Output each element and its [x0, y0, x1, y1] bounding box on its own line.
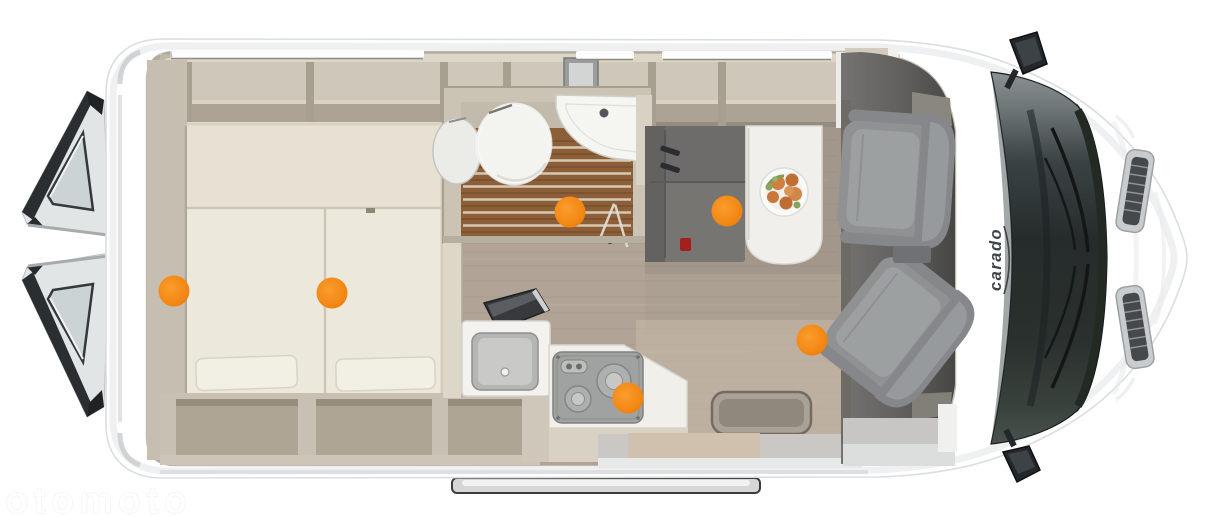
- svg-text:carado: carado: [987, 228, 1005, 291]
- svg-text:otomoto: otomoto: [5, 480, 192, 517]
